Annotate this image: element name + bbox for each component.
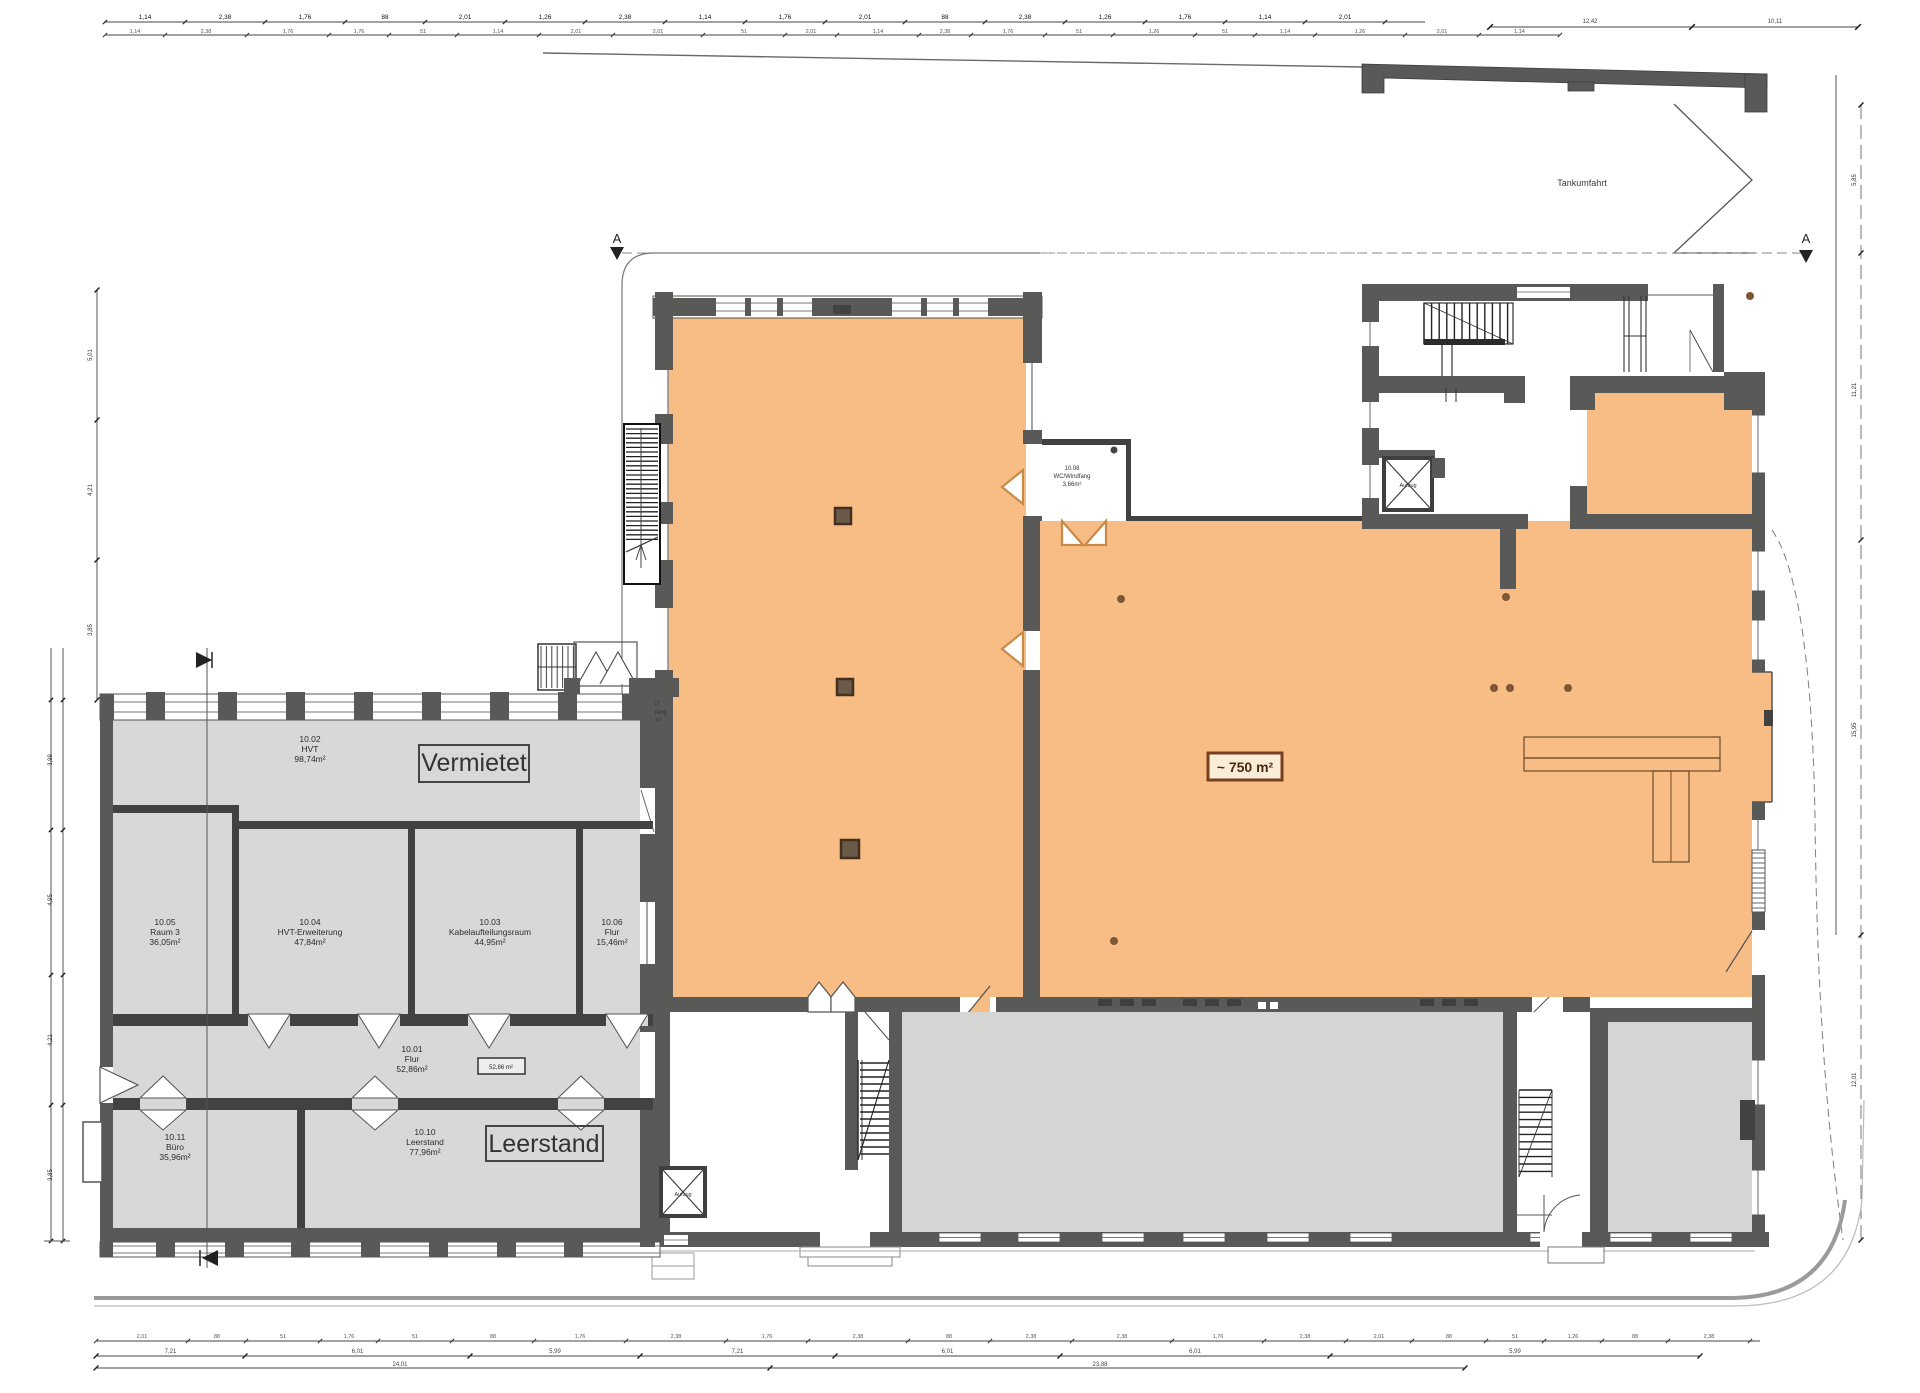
svg-text:51: 51 [741, 29, 747, 35]
svg-text:10.04: 10.04 [299, 917, 321, 927]
svg-text:7,21: 7,21 [165, 1349, 177, 1355]
svg-text:1,14: 1,14 [1259, 14, 1272, 21]
svg-text:3,99: 3,99 [48, 754, 54, 766]
svg-text:10.06: 10.06 [601, 917, 623, 927]
svg-text:1,26: 1,26 [1355, 29, 1366, 35]
svg-text:Aufzug: Aufzug [674, 1192, 691, 1198]
svg-text:1,76: 1,76 [1179, 14, 1192, 21]
svg-text:88: 88 [1446, 1334, 1452, 1340]
svg-text:36,05m²: 36,05m² [149, 937, 180, 947]
svg-text:Leerstand: Leerstand [488, 1130, 599, 1158]
svg-text:10.05: 10.05 [154, 917, 176, 927]
svg-text:2,01: 2,01 [653, 29, 664, 35]
svg-text:5,99: 5,99 [1509, 1349, 1521, 1355]
svg-text:Vermietet: Vermietet [421, 749, 527, 777]
svg-text:2,38: 2,38 [1704, 1334, 1715, 1340]
svg-text:5,99: 5,99 [549, 1349, 561, 1355]
svg-text:3,85: 3,85 [48, 1169, 54, 1181]
svg-text:Leerstand: Leerstand [406, 1137, 444, 1147]
svg-text:2,38: 2,38 [219, 14, 232, 21]
svg-text:15,46m²: 15,46m² [596, 937, 627, 947]
svg-text:3,85: 3,85 [88, 624, 94, 636]
svg-text:51: 51 [1076, 29, 1082, 35]
svg-text:1,76: 1,76 [779, 14, 792, 21]
svg-text:10.02: 10.02 [299, 734, 321, 744]
svg-text:1,14: 1,14 [130, 29, 141, 35]
svg-text:A: A [1802, 231, 1811, 246]
svg-text:12,01: 12,01 [1852, 1072, 1858, 1088]
svg-text:Büro: Büro [166, 1142, 184, 1152]
svg-text:6,01: 6,01 [1189, 1349, 1201, 1355]
svg-text:2,38: 2,38 [1026, 1334, 1037, 1340]
svg-text:2,38: 2,38 [1300, 1334, 1311, 1340]
svg-text:HVT: HVT [302, 744, 319, 754]
svg-text:88: 88 [214, 1334, 220, 1340]
svg-text:23,88: 23,88 [1092, 1362, 1108, 1368]
svg-text:1,14: 1,14 [1280, 29, 1291, 35]
svg-text:1,76: 1,76 [1003, 29, 1014, 35]
svg-text:6,01: 6,01 [352, 1349, 364, 1355]
svg-text:1,76: 1,76 [299, 14, 312, 21]
svg-text:5,85: 5,85 [1852, 174, 1858, 186]
svg-text:1,26: 1,26 [1099, 14, 1112, 21]
svg-text:15,95: 15,95 [1852, 722, 1858, 738]
svg-text:12,42: 12,42 [1582, 19, 1598, 25]
svg-text:2,38: 2,38 [671, 1334, 682, 1340]
svg-text:2,01: 2,01 [571, 29, 582, 35]
svg-text:1,14: 1,14 [699, 14, 712, 21]
svg-text:Tankumfahrt: Tankumfahrt [1557, 178, 1607, 188]
svg-text:11,21: 11,21 [1852, 382, 1858, 397]
svg-text:2,01: 2,01 [137, 1334, 148, 1340]
svg-text:Raum 3: Raum 3 [150, 927, 180, 937]
svg-text:88: 88 [490, 1334, 496, 1340]
svg-text:Kabelaufteilungsraum: Kabelaufteilungsraum [449, 927, 531, 937]
svg-text:51: 51 [280, 1334, 286, 1340]
svg-text:4,21: 4,21 [88, 484, 94, 496]
svg-text:1,76: 1,76 [575, 1334, 586, 1340]
svg-text:24,01: 24,01 [392, 1362, 408, 1368]
svg-text:6,01: 6,01 [942, 1349, 954, 1355]
svg-text:2,01: 2,01 [1374, 1334, 1385, 1340]
svg-text:1,26: 1,26 [1149, 29, 1160, 35]
svg-text:10,11: 10,11 [1768, 19, 1783, 25]
svg-text:HVT-Erweiterung: HVT-Erweiterung [278, 927, 343, 937]
svg-text:2,01: 2,01 [859, 14, 872, 21]
svg-text:88: 88 [946, 1334, 952, 1340]
svg-text:1,14: 1,14 [1514, 29, 1525, 35]
svg-text:88: 88 [1632, 1334, 1638, 1340]
svg-text:2,38: 2,38 [619, 14, 632, 21]
svg-text:Flur: Flur [605, 927, 620, 937]
svg-text:4,95: 4,95 [48, 894, 54, 906]
svg-text:51: 51 [1512, 1334, 1518, 1340]
svg-text:2,38: 2,38 [940, 29, 951, 35]
svg-text:88: 88 [381, 14, 389, 21]
svg-text:2,38: 2,38 [201, 29, 212, 35]
svg-text:10.11: 10.11 [165, 1132, 186, 1142]
svg-text:Flur: Flur [405, 1054, 420, 1064]
svg-text:47,84m²: 47,84m² [294, 937, 325, 947]
svg-text:52,86m²: 52,86m² [396, 1064, 427, 1074]
svg-text:10.10: 10.10 [414, 1127, 436, 1137]
svg-text:52,86 m²: 52,86 m² [489, 1065, 513, 1071]
svg-text:5,01: 5,01 [88, 349, 94, 361]
svg-text:51: 51 [420, 29, 426, 35]
svg-text:44,95m²: 44,95m² [474, 937, 505, 947]
svg-text:2,01: 2,01 [459, 14, 472, 21]
svg-text:7,21: 7,21 [732, 1349, 744, 1355]
svg-text:3,66m²: 3,66m² [1063, 482, 1082, 488]
svg-text:35,96m²: 35,96m² [159, 1152, 190, 1162]
svg-text:1,26: 1,26 [1568, 1334, 1579, 1340]
svg-text:Aufzug: Aufzug [1399, 483, 1416, 489]
svg-text:2,01: 2,01 [806, 29, 817, 35]
svg-text:1,76: 1,76 [762, 1334, 773, 1340]
svg-text:2,38: 2,38 [853, 1334, 864, 1340]
svg-text:51: 51 [1222, 29, 1228, 35]
svg-text:~ 750 m²: ~ 750 m² [1217, 759, 1274, 775]
svg-text:98,74m²: 98,74m² [294, 754, 325, 764]
svg-text:10.01: 10.01 [401, 1044, 423, 1054]
svg-text:1,14: 1,14 [493, 29, 504, 35]
svg-text:1,76: 1,76 [344, 1334, 355, 1340]
svg-text:WC/Windfang: WC/Windfang [1053, 474, 1090, 480]
svg-text:1,76: 1,76 [354, 29, 365, 35]
svg-text:51: 51 [412, 1334, 418, 1340]
svg-text:77,96m²: 77,96m² [409, 1147, 440, 1157]
svg-text:2,01: 2,01 [1437, 29, 1448, 35]
svg-text:1,14: 1,14 [873, 29, 884, 35]
svg-text:88: 88 [941, 14, 949, 21]
svg-text:1,26: 1,26 [539, 14, 552, 21]
svg-text:1,76: 1,76 [283, 29, 294, 35]
svg-text:4,21: 4,21 [48, 1034, 54, 1046]
svg-text:10.03: 10.03 [479, 917, 501, 927]
svg-text:10.08: 10.08 [1064, 466, 1080, 472]
svg-text:2,01: 2,01 [1339, 14, 1352, 21]
svg-text:1,14: 1,14 [139, 14, 152, 21]
svg-text:2,38: 2,38 [1117, 1334, 1128, 1340]
svg-text:1,76: 1,76 [1213, 1334, 1224, 1340]
svg-text:A: A [613, 231, 622, 246]
svg-text:2,38: 2,38 [1019, 14, 1032, 21]
